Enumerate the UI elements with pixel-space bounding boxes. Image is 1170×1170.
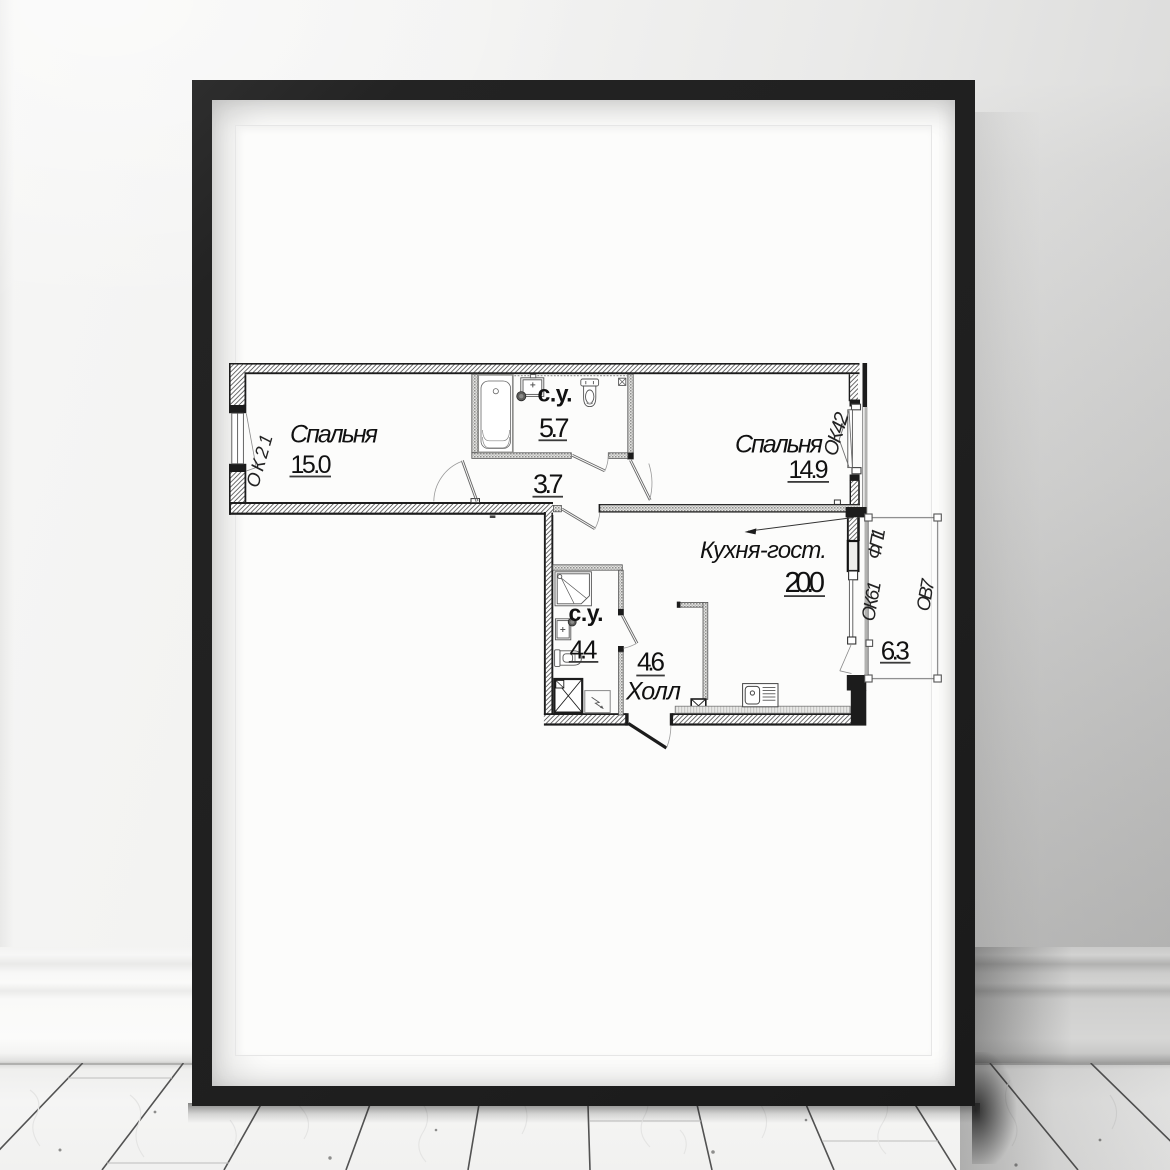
svg-text:5.7: 5.7 <box>539 413 570 443</box>
svg-text:с.у.: с.у. <box>538 381 573 407</box>
svg-text:4.4: 4.4 <box>570 634 598 664</box>
svg-text:Спальня: Спальня <box>735 431 823 459</box>
svg-text:ОВ7: ОВ7 <box>913 576 939 613</box>
svg-text:3.7: 3.7 <box>533 469 564 499</box>
svg-text:с.у.: с.у. <box>569 600 604 626</box>
svg-text:6.3: 6.3 <box>881 636 910 666</box>
svg-text:20.0: 20.0 <box>785 567 826 599</box>
svg-text:15.0: 15.0 <box>291 451 332 479</box>
svg-text:Кухня-гост.: Кухня-гост. <box>700 537 827 564</box>
svg-text:Холл: Холл <box>625 678 681 706</box>
svg-text:ОК61: ОК61 <box>858 580 886 623</box>
svg-text:ФП1: ФП1 <box>864 527 890 561</box>
svg-text:4.6: 4.6 <box>637 647 665 677</box>
svg-text:ОК21: ОК21 <box>242 432 277 490</box>
svg-text:14.9: 14.9 <box>789 456 829 484</box>
svg-text:Спальня: Спальня <box>290 421 378 449</box>
